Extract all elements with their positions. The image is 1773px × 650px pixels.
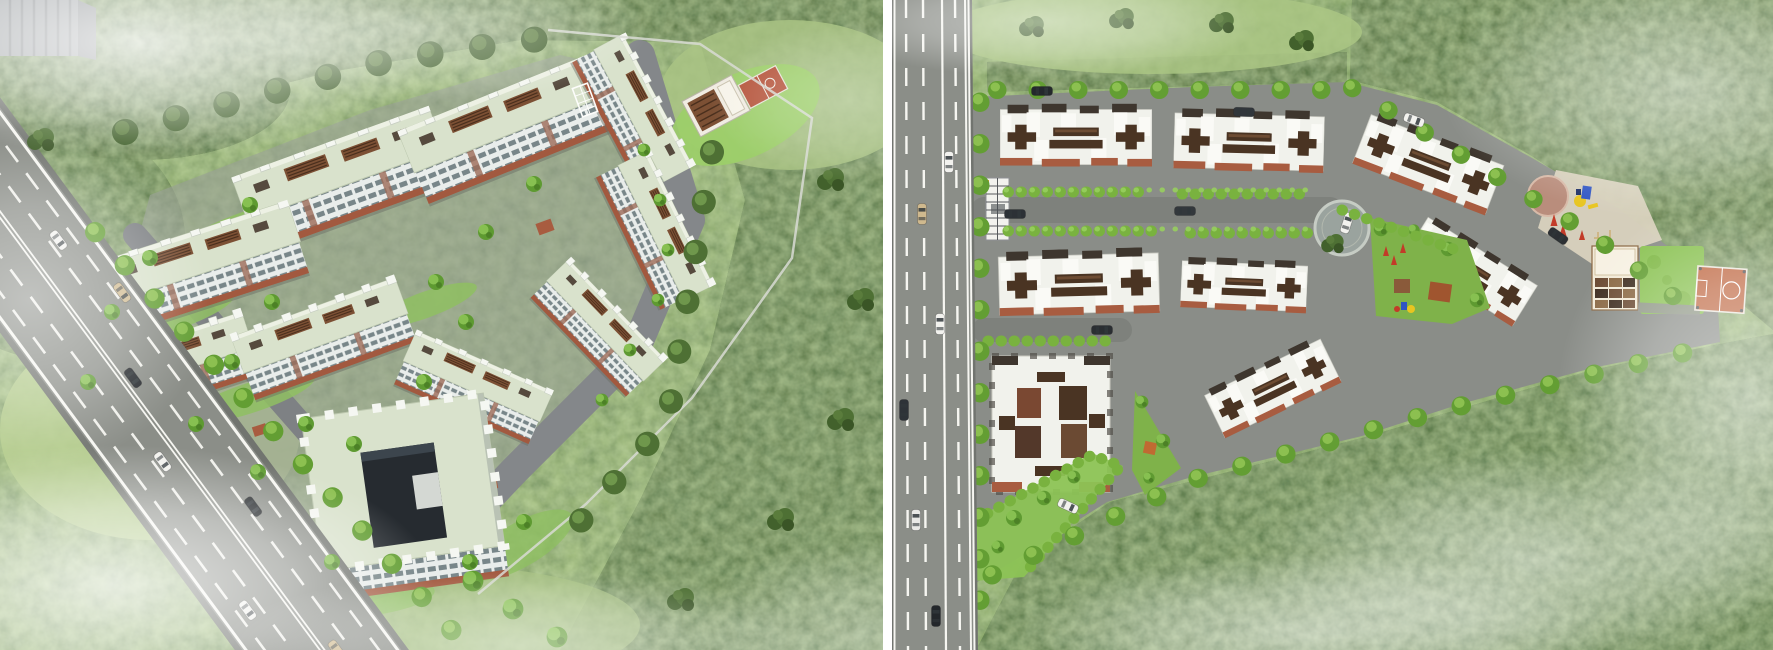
site-plan-figure [892, 0, 1773, 650]
aerial-3d-render-figure [0, 0, 883, 650]
panel-divider [883, 0, 892, 650]
render-collage [0, 0, 1773, 650]
